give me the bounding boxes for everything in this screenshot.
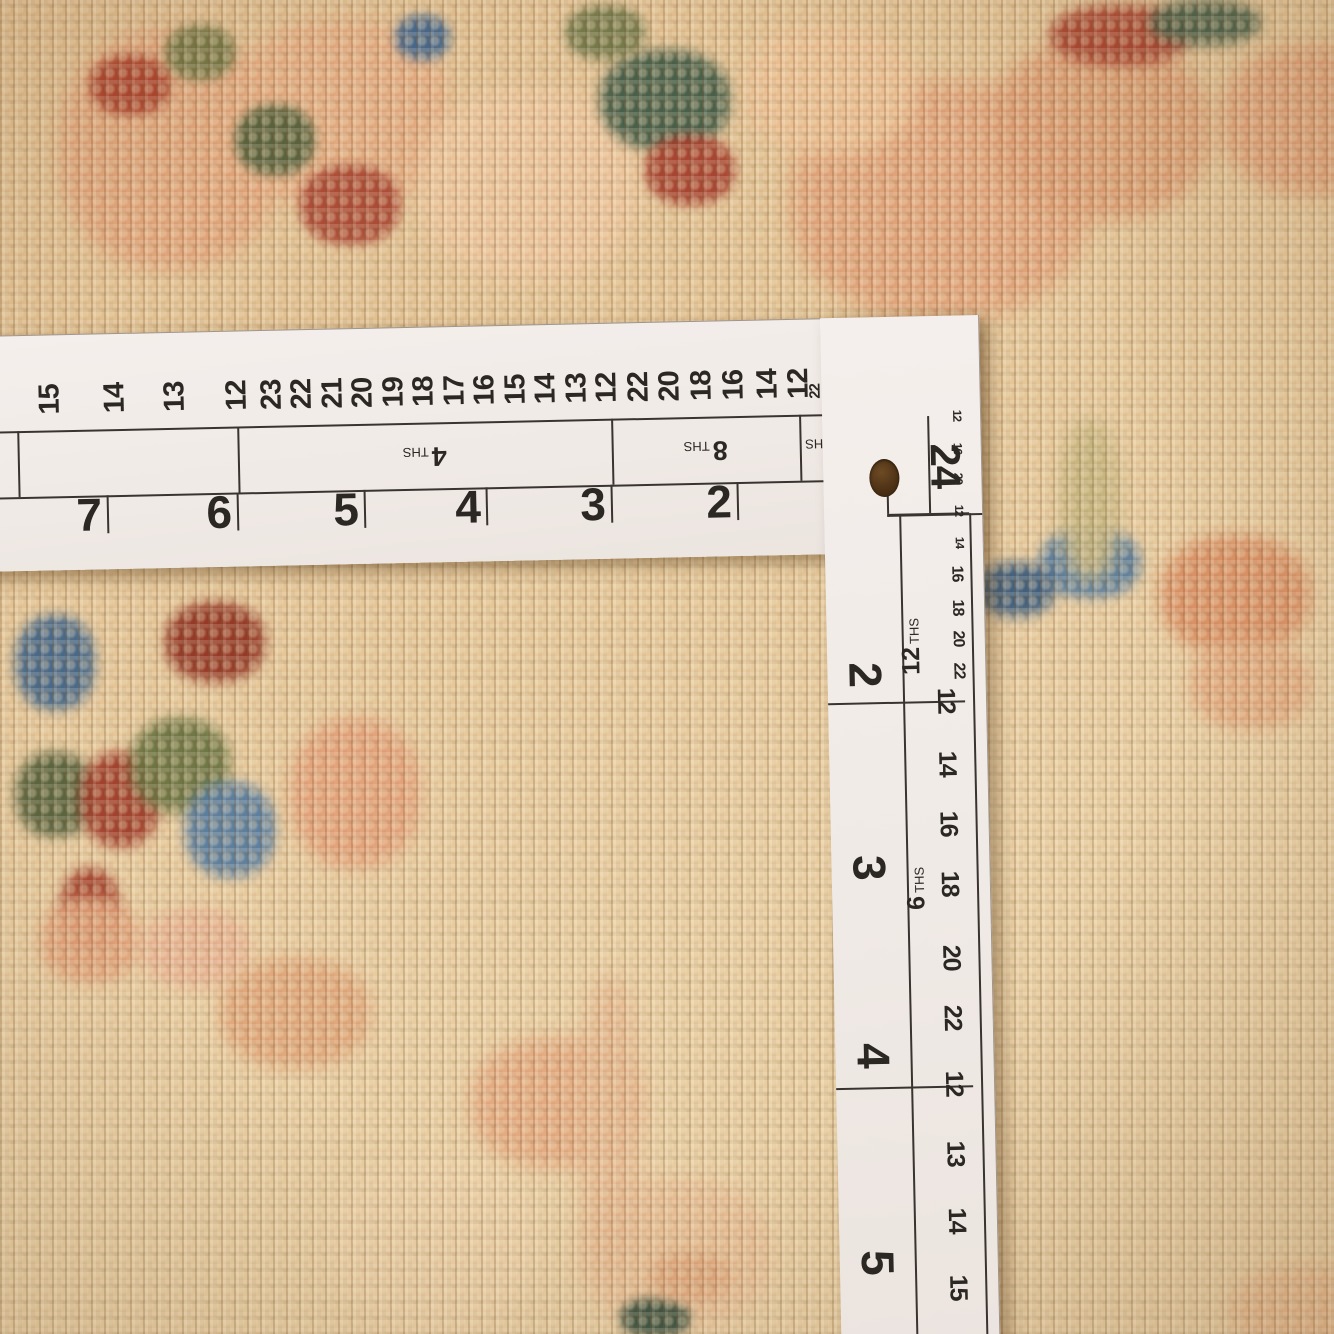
blade-inch-number: 6	[191, 490, 232, 535]
tongue-edge-number: 13	[935, 1133, 976, 1174]
tongue-edge-number: 20	[931, 937, 972, 978]
framing-square-ruler: 1514131223222120191817161514131222201816…	[0, 0, 1334, 1334]
tongue-fraction-suffix: THS	[912, 867, 928, 893]
blade-fraction-number: 4	[431, 440, 447, 471]
tongue-fraction-label: 6THS	[901, 843, 939, 934]
blade-inch-line	[486, 487, 489, 525]
tongue-fraction-number: 12	[897, 647, 927, 675]
blade-top-scale-number: 13	[154, 376, 195, 417]
blade-top-scale-number: 15	[29, 379, 70, 420]
blade-fraction-label: 8THS	[660, 429, 751, 467]
tongue-fraction-suffix: THS	[906, 618, 922, 644]
tongue-left-tick	[824, 520, 868, 522]
blade-inch-line	[736, 482, 739, 520]
blade-fraction-suffix: THS	[684, 439, 710, 455]
tongue-corner-number: 24	[923, 443, 968, 488]
blade-fraction-number: 8	[712, 434, 728, 465]
tongue-edge-number: 14	[927, 743, 968, 784]
blade-inch-line	[237, 493, 240, 531]
blade-inch-number: 2	[690, 479, 731, 524]
tongue-inch-number: 2	[843, 652, 888, 697]
ruler-hanging-hole	[869, 459, 900, 498]
tongue-fraction-number: 6	[902, 896, 931, 911]
tongue-edge-number: 22	[932, 997, 973, 1038]
blade-inch-number: 3	[564, 482, 605, 527]
blade-fraction-suffix: THS	[403, 445, 429, 461]
tongue-inch-number: 5	[855, 1240, 900, 1285]
blade-fraction-label: 4THS	[379, 435, 470, 473]
blade-inch-number: 4	[439, 484, 480, 529]
photo-of-rug-with-framing-square: 1514131223222120191817161514131222201816…	[0, 0, 1334, 1334]
blade-inch-line	[610, 485, 613, 523]
tongue-inch-number: 4	[851, 1033, 896, 1078]
tongue-edge-number: 16	[928, 803, 969, 844]
blade-box-line	[237, 426, 240, 492]
tongue-edge-number: 14	[937, 1200, 978, 1241]
tongue-edge-number: 12	[934, 1063, 975, 1104]
blade-inch-number: 5	[317, 487, 358, 532]
blade-top-scale-number: 14	[94, 378, 135, 419]
blade-inch-line	[364, 490, 367, 528]
blade-inch-line	[107, 495, 110, 533]
tongue-inch-number: 3	[847, 845, 892, 890]
ruler-vertical-tongue: 1216201214161820221214161820221213141523…	[820, 315, 1001, 1334]
tongue-edge-number: 15	[938, 1267, 979, 1308]
blade-box-line	[17, 431, 20, 497]
blade-box-line	[611, 419, 614, 485]
tongue-fraction-label: 12THS	[896, 601, 934, 692]
blade-inch-number: 7	[61, 492, 102, 537]
